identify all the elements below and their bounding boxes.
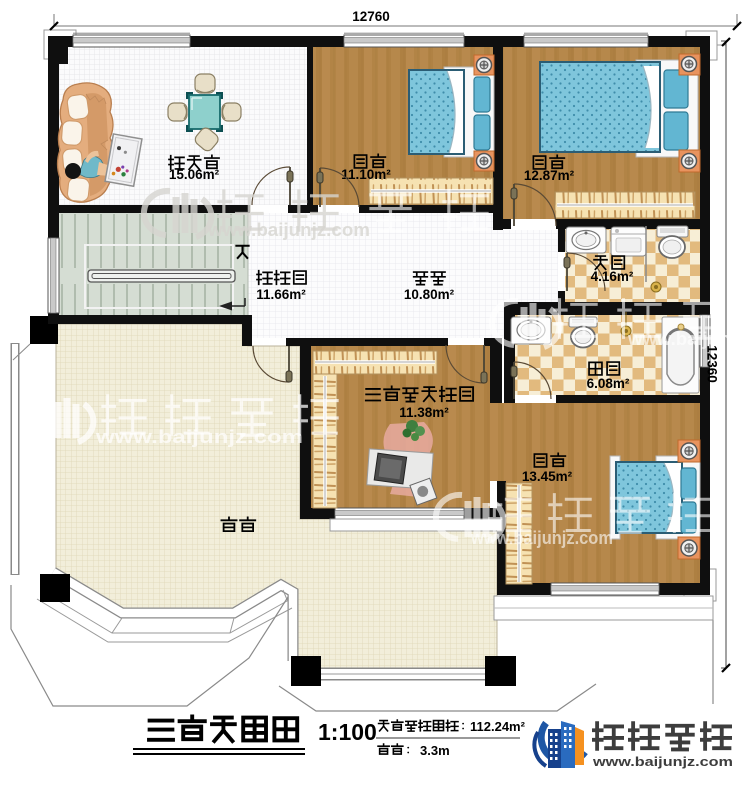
svg-text:www.baijunjz.com: www.baijunjz.com	[470, 528, 613, 548]
svg-text:10.80m²: 10.80m²	[404, 287, 455, 302]
svg-text:3.3m: 3.3m	[420, 743, 450, 758]
svg-text:www.baijunjz.com: www.baijunjz.com	[207, 220, 370, 240]
svg-text:12.87m²: 12.87m²	[524, 168, 575, 183]
svg-text:112.24m²: 112.24m²	[470, 719, 526, 734]
svg-text:www.baijunjz.com: www.baijunjz.com	[627, 329, 750, 349]
svg-text:www.baijunjz.com: www.baijunjz.com	[95, 427, 303, 447]
svg-text:www.baijunjz.com: www.baijunjz.com	[592, 754, 733, 769]
svg-text:15.06m²: 15.06m²	[169, 167, 220, 182]
svg-text:13.45m²: 13.45m²	[522, 469, 573, 484]
svg-text:4.16m²: 4.16m²	[591, 269, 634, 284]
svg-text:6.08m²: 6.08m²	[587, 376, 630, 391]
svg-text:12360: 12360	[705, 345, 720, 383]
svg-text:11.66m²: 11.66m²	[256, 287, 306, 302]
svg-text:1:100: 1:100	[318, 719, 377, 745]
svg-text:11.38m²: 11.38m²	[399, 405, 449, 420]
svg-text:12760: 12760	[352, 9, 390, 24]
